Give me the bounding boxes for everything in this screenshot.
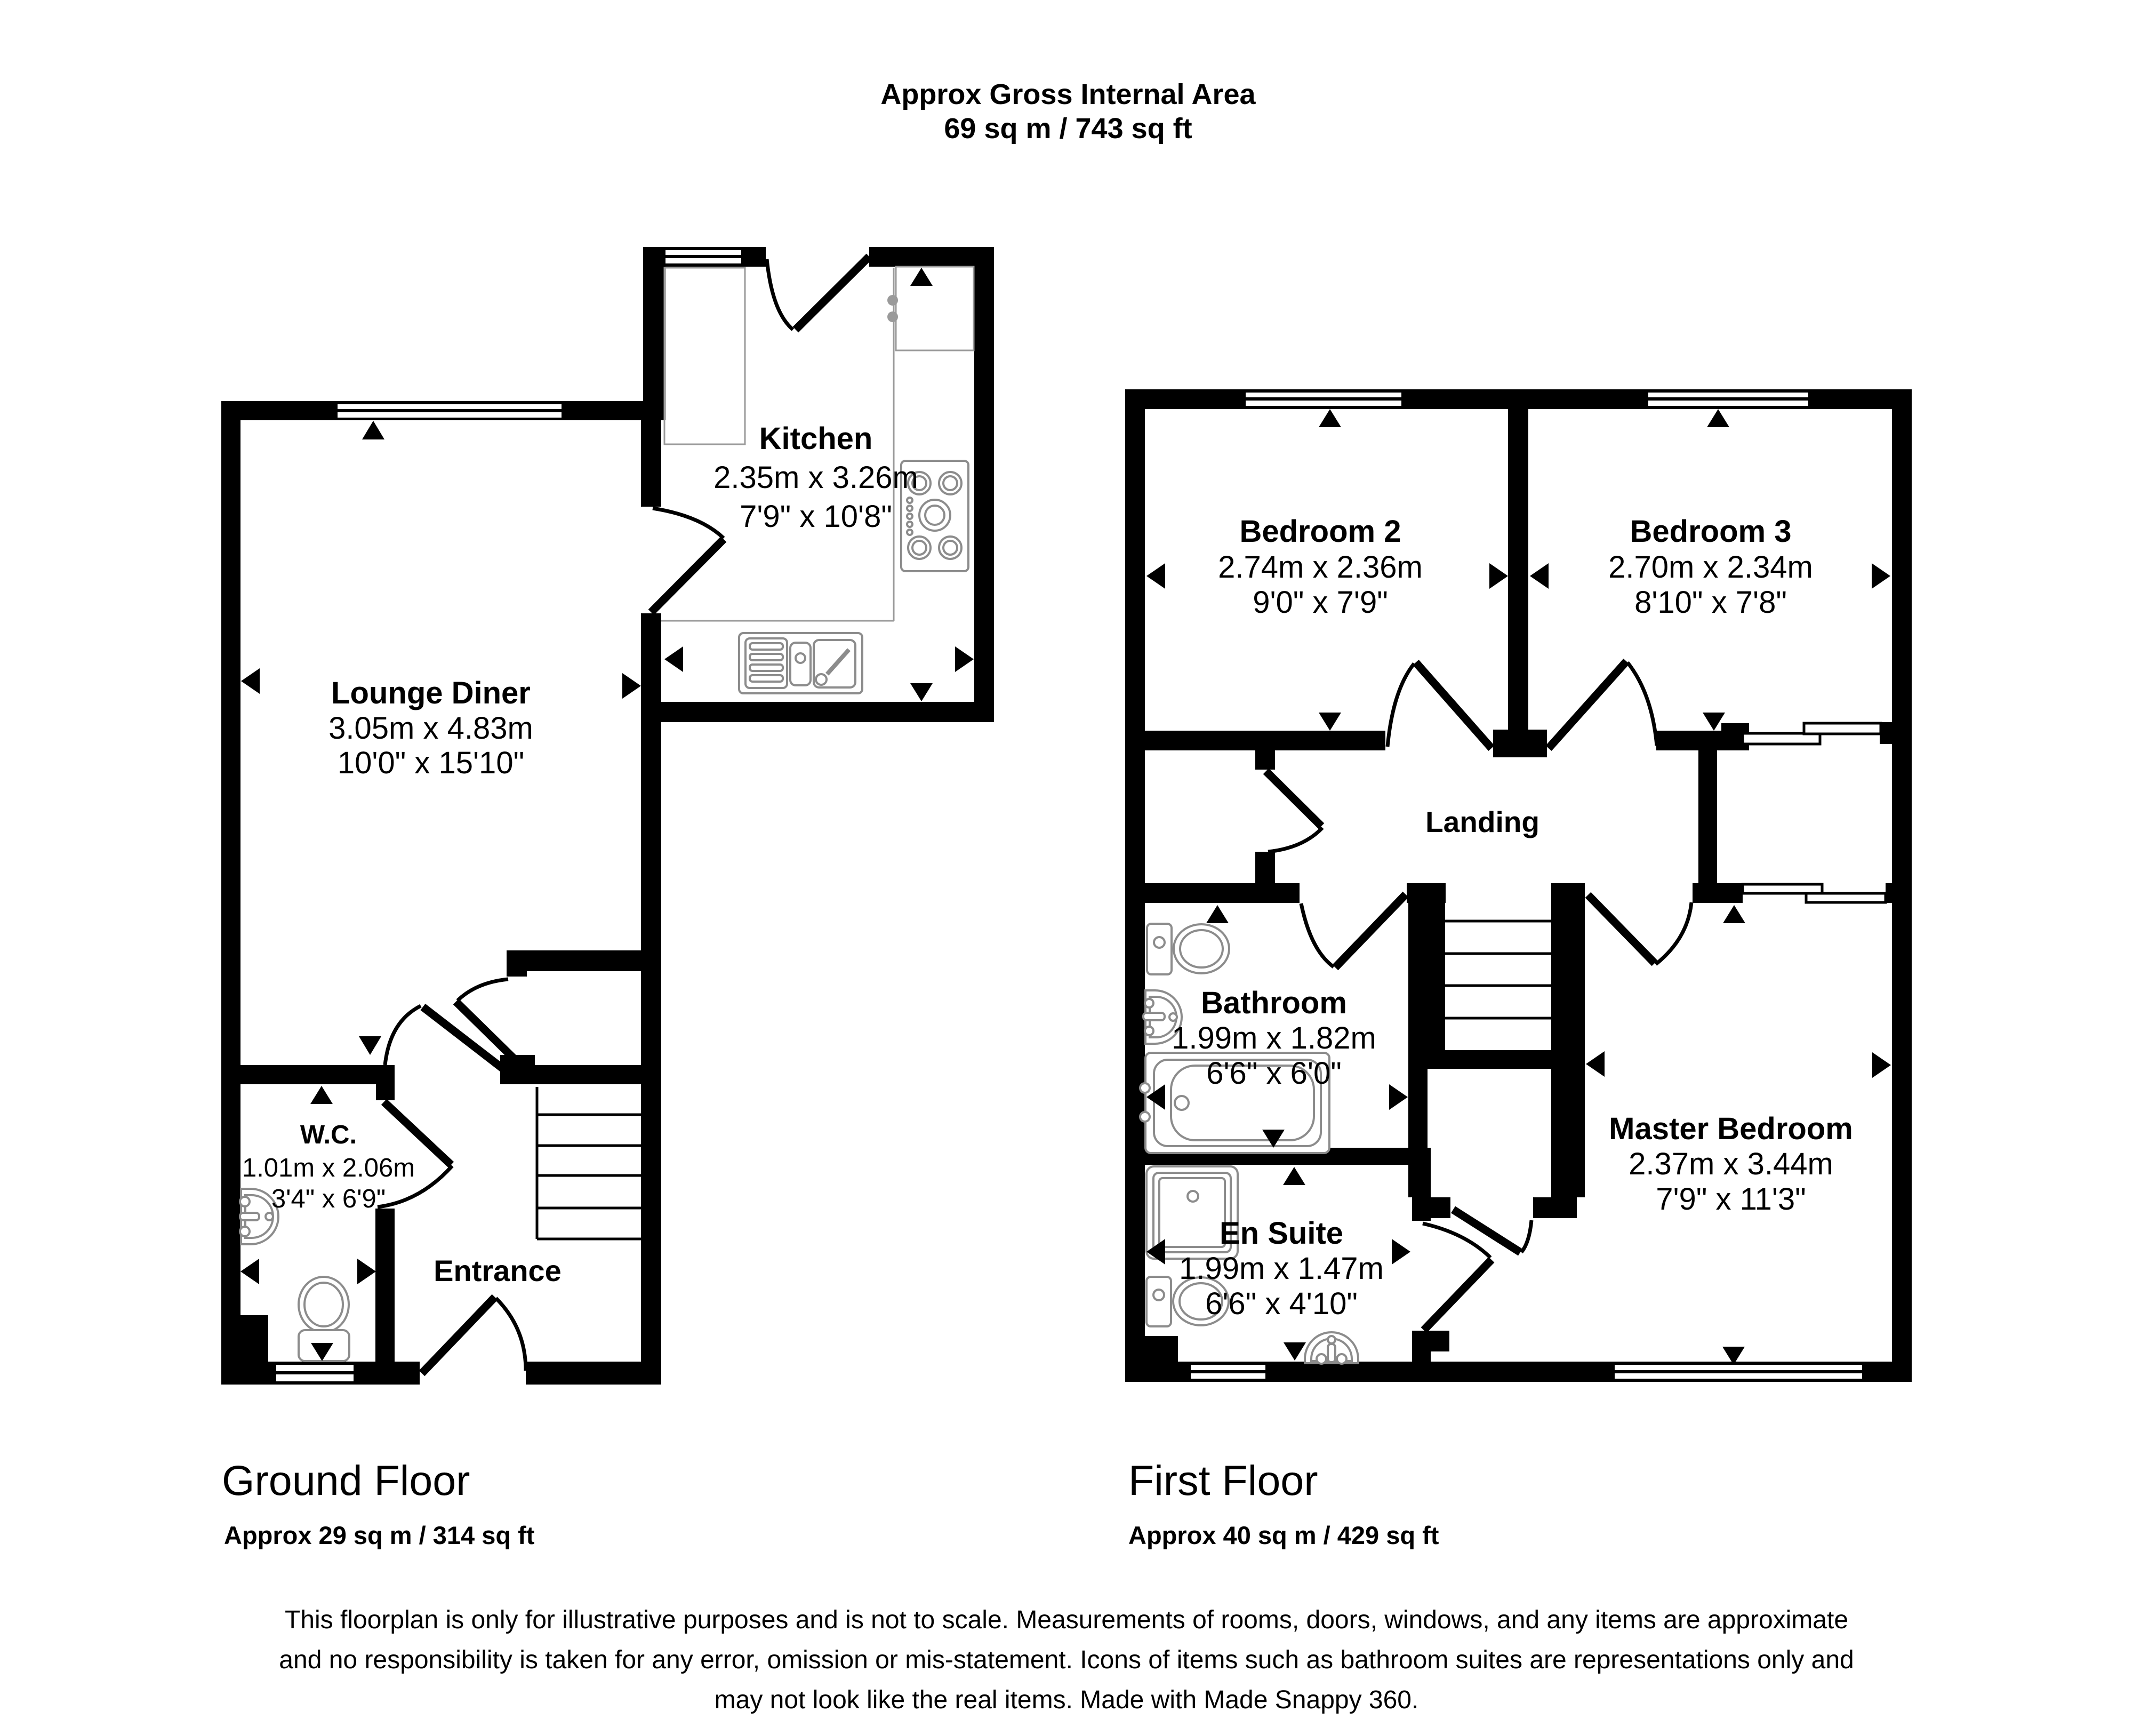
svg-text:Kitchen: Kitchen [759,421,873,456]
svg-text:8'10" x 7'8": 8'10" x 7'8" [1634,585,1787,620]
svg-text:Landing: Landing [1425,805,1539,838]
svg-text:1.01m x 2.06m: 1.01m x 2.06m [242,1154,415,1182]
svg-text:Bathroom: Bathroom [1201,986,1347,1020]
svg-text:W.C.: W.C. [300,1121,357,1149]
svg-text:3.05m x 4.83m: 3.05m x 4.83m [328,711,533,746]
svg-text:Approx 40 sq m / 429 sq ft: Approx 40 sq m / 429 sq ft [1128,1521,1439,1549]
svg-text:Ground Floor: Ground Floor [222,1457,470,1504]
svg-text:2.70m x 2.34m: 2.70m x 2.34m [1608,550,1813,585]
svg-text:First Floor: First Floor [1128,1457,1318,1504]
svg-text:1.99m x 1.47m: 1.99m x 1.47m [1179,1251,1384,1286]
svg-text:En Suite: En Suite [1220,1216,1343,1251]
svg-text:Bedroom 2: Bedroom 2 [1240,514,1401,549]
svg-text:1.99m x 1.82m: 1.99m x 1.82m [1172,1021,1376,1055]
svg-text:7'9" x 10'8": 7'9" x 10'8" [740,499,892,534]
svg-text:2.74m x 2.36m: 2.74m x 2.36m [1218,550,1423,585]
svg-text:7'9" x 11'3": 7'9" x 11'3" [1656,1182,1806,1217]
svg-text:10'0" x 15'10": 10'0" x 15'10" [338,746,524,780]
svg-text:6'6" x 6'0": 6'6" x 6'0" [1206,1056,1342,1091]
svg-text:Lounge Diner: Lounge Diner [331,676,531,710]
svg-text:Approx Gross Internal Area: Approx Gross Internal Area [880,78,1256,110]
svg-text:Entrance: Entrance [434,1254,562,1287]
svg-text:6'6" x 4'10": 6'6" x 4'10" [1205,1286,1358,1321]
svg-text:may not look like the real ite: may not look like the real items. Made w… [715,1686,1419,1714]
svg-text:69 sq m / 743 sq ft: 69 sq m / 743 sq ft [944,113,1192,145]
svg-text:Master Bedroom: Master Bedroom [1609,1111,1853,1146]
svg-text:2.35m x 3.26m: 2.35m x 3.26m [713,460,918,495]
svg-text:3'4" x 6'9": 3'4" x 6'9" [271,1185,386,1213]
svg-text:2.37m x 3.44m: 2.37m x 3.44m [1629,1147,1833,1181]
svg-text:Bedroom 3: Bedroom 3 [1630,514,1792,549]
svg-text:This floorplan is only for ill: This floorplan is only for illustrative … [285,1606,1848,1634]
svg-text:and no responsibility is taken: and no responsibility is taken for any e… [279,1646,1854,1674]
svg-text:9'0" x 7'9": 9'0" x 7'9" [1253,585,1388,620]
svg-text:Approx 29 sq m / 314 sq ft: Approx 29 sq m / 314 sq ft [224,1521,535,1549]
